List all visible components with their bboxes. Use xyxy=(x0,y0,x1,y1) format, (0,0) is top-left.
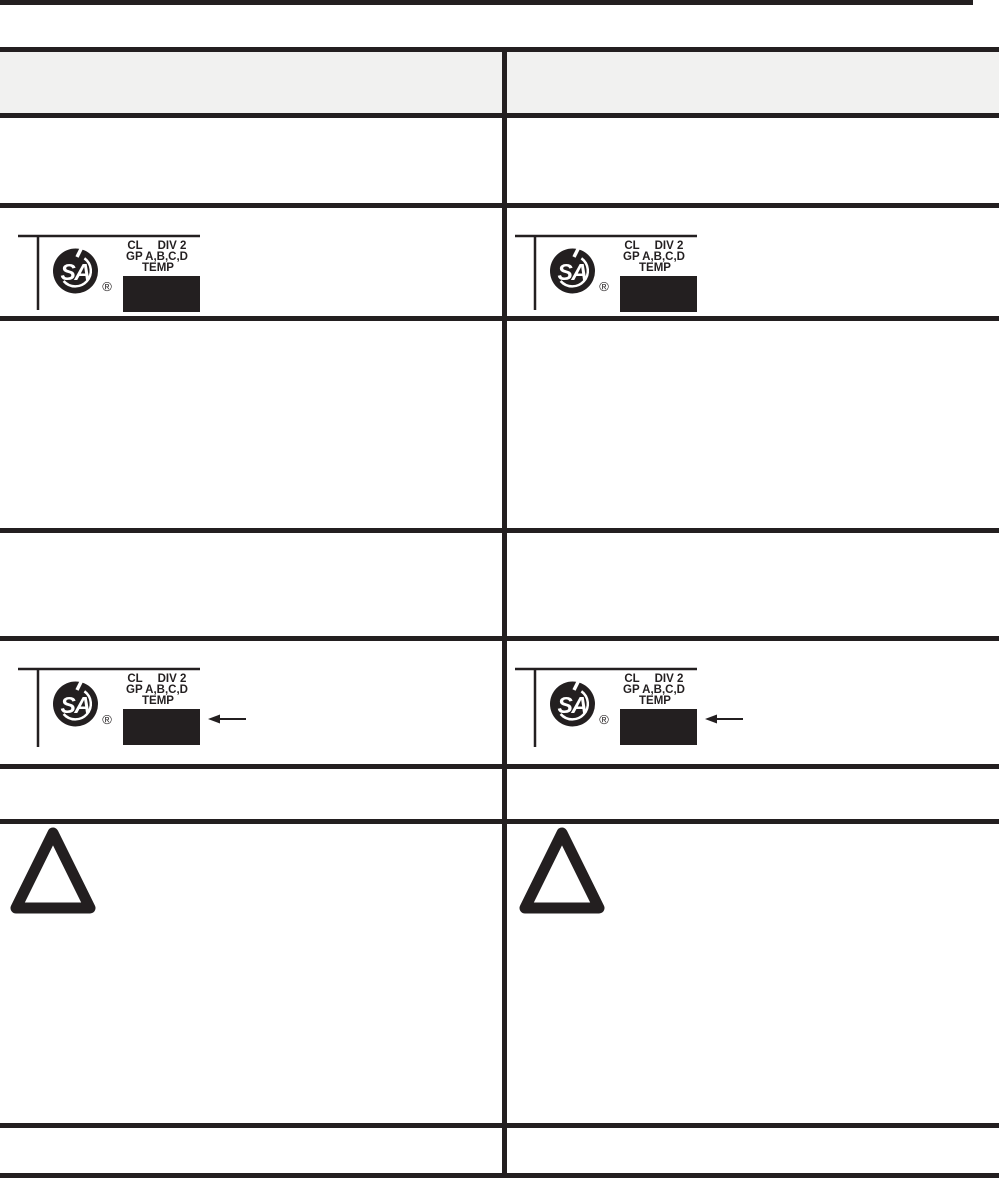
page-top-rule xyxy=(0,0,973,5)
table-row xyxy=(0,118,999,208)
csa-logo-icon: SA ® xyxy=(53,247,112,294)
table-header-row xyxy=(0,52,999,118)
registered-trademark-icon: ® xyxy=(102,279,112,294)
table-cell xyxy=(502,118,999,203)
csa-logo-icon: SA ® xyxy=(550,247,609,294)
black-label-box xyxy=(123,276,200,312)
arrow-left-icon xyxy=(705,715,743,724)
table-cell: SA ® CL DIV 2 GP A,B,C,D TEMP xyxy=(0,641,502,764)
table-cell xyxy=(502,321,999,528)
temp-label: TEMP xyxy=(142,695,174,707)
document-page: SA ® CL DIV 2 GP A,B,C,D TEMP xyxy=(0,0,999,1178)
table-cell xyxy=(0,321,502,528)
registered-trademark-icon: ® xyxy=(599,712,609,727)
certification-table: SA ® CL DIV 2 GP A,B,C,D TEMP xyxy=(0,47,999,1178)
table-row xyxy=(0,1128,999,1178)
temp-label: TEMP xyxy=(639,262,671,274)
table-row xyxy=(0,533,999,641)
csa-certification-mark-with-arrow: SA ® CL DIV 2 GP A,B,C,D TEMP xyxy=(16,665,256,757)
table-cell: SA ® CL DIV 2 GP A,B,C,D TEMP xyxy=(502,641,999,764)
warning-triangle-icon xyxy=(517,824,609,916)
csa-monogram: SA xyxy=(61,692,90,718)
csa-logo-icon: SA ® xyxy=(550,680,609,727)
table-row xyxy=(0,769,999,824)
table-cell xyxy=(502,1128,999,1173)
table-row xyxy=(0,824,999,1128)
warning-triangle-icon xyxy=(8,824,100,916)
table-row: SA ® CL DIV 2 GP A,B,C,D TEMP xyxy=(0,208,999,321)
black-label-box xyxy=(620,276,697,312)
csa-certification-mark-with-arrow: SA ® CL DIV 2 GP A,B,C,D TEMP xyxy=(513,665,753,757)
table-cell xyxy=(0,769,502,819)
header-cell-right xyxy=(502,52,999,113)
table-cell: SA ® CL DIV 2 GP A,B,C,D TEMP xyxy=(502,208,999,316)
temp-label: TEMP xyxy=(639,695,671,707)
table-cell: SA ® CL DIV 2 GP A,B,C,D TEMP xyxy=(0,208,502,316)
csa-monogram: SA xyxy=(61,259,90,285)
table-cell xyxy=(0,824,502,1123)
table-cell xyxy=(0,533,502,636)
table-cell xyxy=(502,824,999,1123)
csa-monogram: SA xyxy=(558,259,587,285)
header-cell-left xyxy=(0,52,502,113)
table-cell xyxy=(0,1128,502,1173)
arrow-left-icon xyxy=(208,715,246,724)
table-cell xyxy=(502,533,999,636)
registered-trademark-icon: ® xyxy=(102,712,112,727)
table-row xyxy=(0,321,999,533)
table-row: SA ® CL DIV 2 GP A,B,C,D TEMP xyxy=(0,641,999,769)
csa-certification-mark: SA ® CL DIV 2 GP A,B,C,D TEMP xyxy=(16,232,256,324)
temp-label: TEMP xyxy=(142,262,174,274)
registered-trademark-icon: ® xyxy=(599,279,609,294)
table-cell xyxy=(502,769,999,819)
black-label-box xyxy=(123,709,200,745)
csa-logo-icon: SA ® xyxy=(53,680,112,727)
black-label-box xyxy=(620,709,697,745)
csa-monogram: SA xyxy=(558,692,587,718)
table-cell xyxy=(0,118,502,203)
csa-certification-mark: SA ® CL DIV 2 GP A,B,C,D TEMP xyxy=(513,232,753,324)
